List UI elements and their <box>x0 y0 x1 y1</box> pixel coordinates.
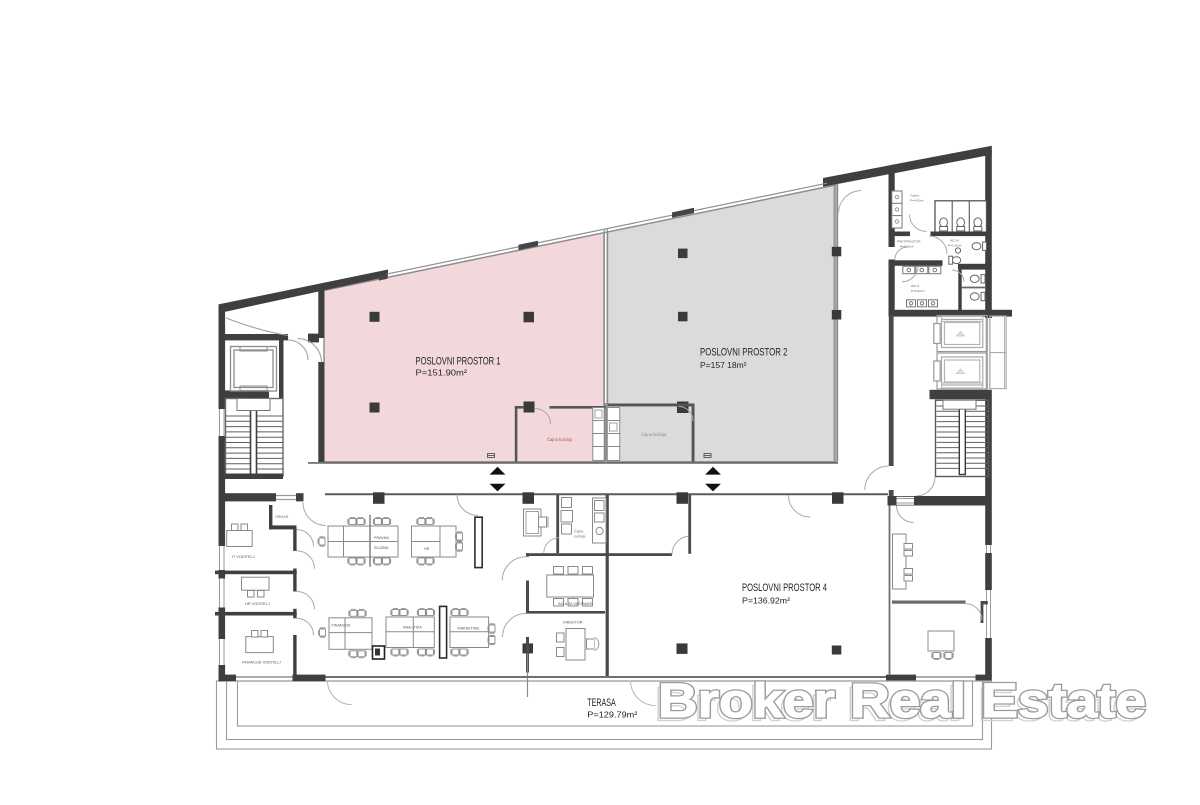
svg-text:IT VODITELJ: IT VODITELJ <box>232 555 255 559</box>
svg-text:P=5.20m²: P=5.20m² <box>911 289 925 293</box>
svg-text:FINANCIJE: FINANCIJE <box>332 624 352 628</box>
svg-text:HR VODITELJ: HR VODITELJ <box>245 602 270 606</box>
svg-text:TERASA: TERASA <box>587 697 616 709</box>
svg-text:Broker Real Estate: Broker Real Estate <box>658 675 1146 728</box>
svg-text:kuhinja: kuhinja <box>574 535 585 539</box>
svg-text:POSLOVNI PROSTOR 4: POSLOVNI PROSTOR 4 <box>742 582 827 594</box>
svg-text:P=6.50m²: P=6.50m² <box>900 245 914 249</box>
svg-text:Tuševi: Tuševi <box>910 194 919 198</box>
svg-text:WC Ž.: WC Ž. <box>911 283 920 288</box>
svg-text:POSLOVNI PROSTOR 1: POSLOVNI PROSTOR 1 <box>416 356 501 368</box>
svg-text:P=136.92m²: P=136.92m² <box>742 596 790 606</box>
svg-text:PRETPROSTOR: PRETPROSTOR <box>897 240 921 244</box>
svg-text:P=3.30m²: P=3.30m² <box>948 244 962 248</box>
svg-text:P=129.79m²: P=129.79m² <box>587 710 637 720</box>
svg-text:MARKETING: MARKETING <box>458 627 480 631</box>
svg-text:P=157 18m²: P=157 18m² <box>700 360 747 370</box>
svg-text:Čajna kuhinja: Čajna kuhinja <box>547 437 573 442</box>
svg-text:HR: HR <box>424 547 430 551</box>
svg-text:P=4.05m²: P=4.05m² <box>910 199 924 203</box>
svg-text:DIREKTOR: DIREKTOR <box>563 621 583 625</box>
svg-text:ORMAR: ORMAR <box>275 515 289 519</box>
svg-text:SLUŽBA: SLUŽBA <box>374 545 389 550</box>
svg-text:POSLOVNI PROSTOR 2: POSLOVNI PROSTOR 2 <box>700 347 788 359</box>
svg-text:ANALITIKA: ANALITIKA <box>403 626 422 630</box>
svg-text:SALA ZA SASTANKE: SALA ZA SASTANKE <box>558 602 593 606</box>
svg-text:P=151.90m²: P=151.90m² <box>416 368 468 378</box>
svg-text:Čajna: Čajna <box>574 529 583 534</box>
svg-text:Čajna kuhinja: Čajna kuhinja <box>641 432 667 437</box>
svg-text:FINANCIJE VODITELJ: FINANCIJE VODITELJ <box>242 661 281 665</box>
svg-text:PRAVNA: PRAVNA <box>374 536 389 540</box>
svg-text:WC M.: WC M. <box>950 239 960 243</box>
